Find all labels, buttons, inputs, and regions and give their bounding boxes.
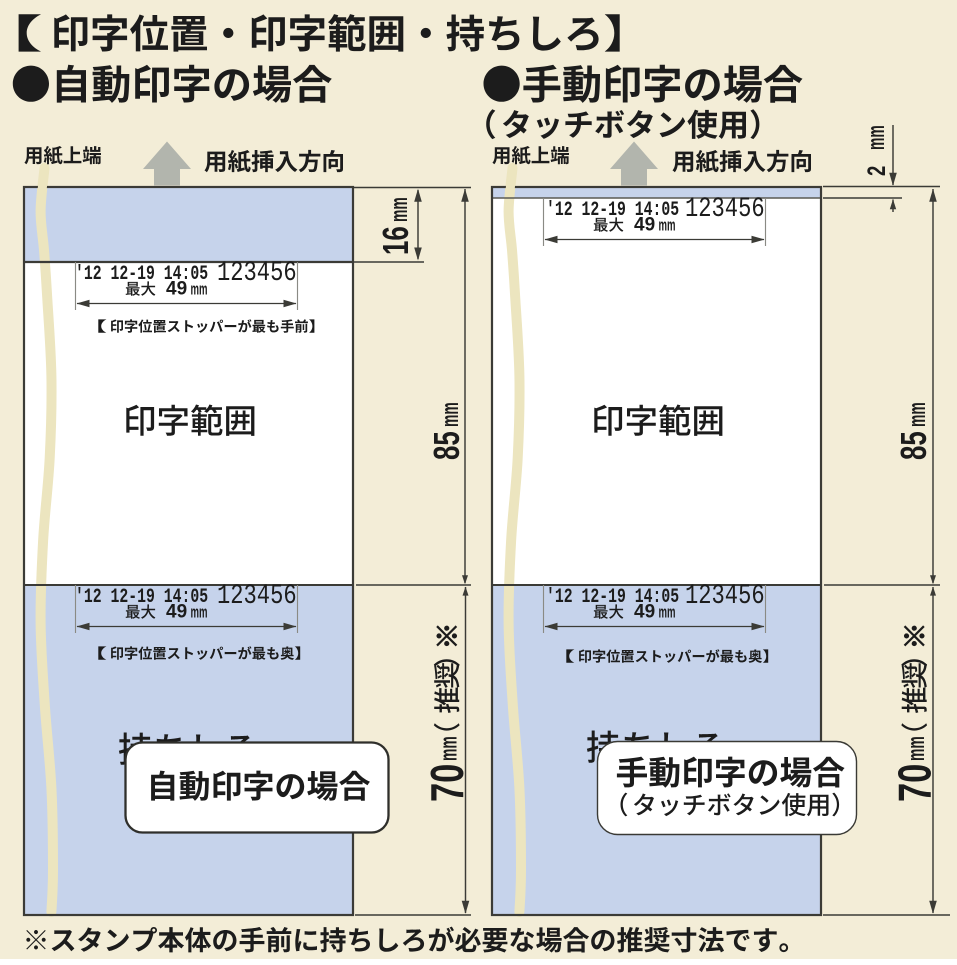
svg-text:70: 70: [421, 764, 473, 802]
svg-text:'12 12-19 14:05: '12 12-19 14:05: [75, 263, 208, 286]
svg-text:mm: mm: [386, 197, 413, 222]
svg-text:mm: mm: [437, 402, 464, 427]
svg-text:49: 49: [634, 602, 655, 623]
svg-text:mm: mm: [904, 402, 931, 427]
svg-text:123456: 123456: [685, 193, 765, 225]
svg-text:123456: 123456: [685, 580, 765, 612]
svg-text:49: 49: [166, 602, 187, 623]
svg-text:49: 49: [634, 215, 655, 236]
svg-text:123456: 123456: [217, 257, 297, 289]
svg-text:123456: 123456: [217, 580, 297, 612]
svg-text:mm: mm: [436, 736, 463, 761]
svg-text:mm: mm: [659, 603, 676, 621]
svg-text:16: 16: [376, 226, 416, 255]
svg-text:70: 70: [889, 764, 941, 802]
svg-text:mm: mm: [191, 603, 208, 621]
svg-text:85: 85: [894, 431, 934, 460]
svg-text:mm: mm: [863, 125, 890, 150]
svg-text:85: 85: [427, 431, 467, 460]
svg-text:49: 49: [166, 279, 187, 300]
svg-text:mm: mm: [903, 736, 930, 761]
svg-text:mm: mm: [659, 216, 676, 234]
svg-text:2: 2: [862, 166, 890, 176]
svg-text:mm: mm: [191, 280, 208, 298]
svg-text:'12 12-19 14:05: '12 12-19 14:05: [75, 586, 208, 609]
